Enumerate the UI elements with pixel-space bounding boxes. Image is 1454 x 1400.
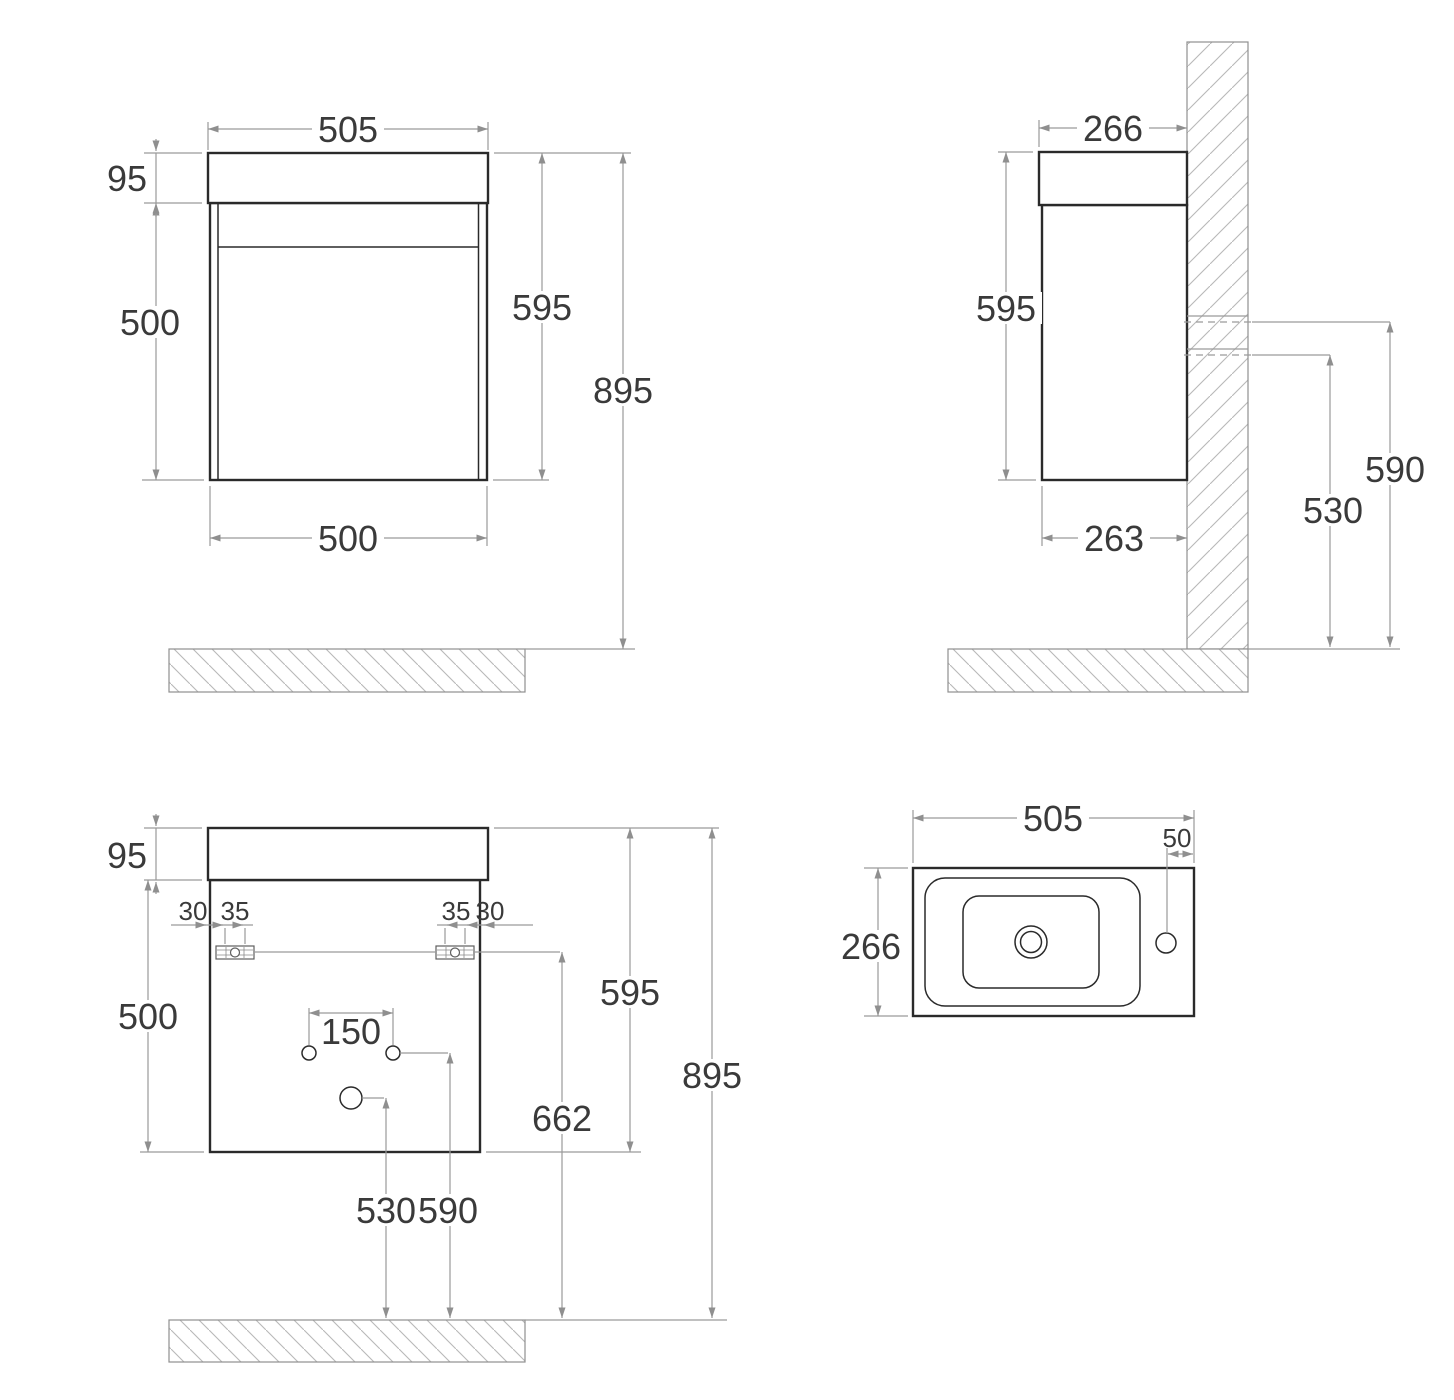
dim-label-back-edge-offset-right: 30	[476, 896, 505, 926]
back-washbasin	[208, 828, 488, 880]
dim-side-depth-top: 266	[1039, 108, 1187, 149]
dim-label-back-total-height: 895	[682, 1055, 742, 1096]
dim-label-back-outlet-height: 530	[356, 1190, 416, 1231]
dim-front-width-bottom: 500	[210, 486, 487, 559]
dim-label-back-edge-offset-left: 30	[179, 896, 208, 926]
dim-label-back-unit-height: 595	[600, 972, 660, 1013]
dim-label-back-cabinet-height: 500	[118, 996, 178, 1037]
dim-back-unit-height: 595	[486, 828, 719, 1152]
front-view	[208, 153, 488, 480]
dim-label-side-depth-bottom: 263	[1084, 518, 1144, 559]
dim-back-total-height: 895	[525, 828, 748, 1320]
front-washbasin	[208, 153, 488, 203]
floor-hatch-back-view	[169, 1320, 525, 1362]
dim-label-top-tap-offset: 50	[1163, 823, 1192, 853]
technical-drawing-page: 505 95 500 500	[0, 0, 1454, 1400]
vanity-dimension-drawing: 505 95 500 500	[0, 0, 1454, 1400]
dim-label-back-bracket-height: 662	[532, 1098, 592, 1139]
dim-top-width: 505	[913, 798, 1194, 863]
dim-side-unit-height: 595	[970, 152, 1042, 480]
dim-label-side-unit-height: 595	[976, 288, 1036, 329]
dim-label-back-bracket-offset-right: 35	[442, 896, 471, 926]
dim-label-back-supply-height: 590	[418, 1190, 478, 1231]
dim-label-back-hole-spacing: 150	[321, 1011, 381, 1052]
dim-label-side-depth-top: 266	[1083, 108, 1143, 149]
dim-front-unit-height: 595	[493, 153, 631, 480]
top-washbasin-outline	[913, 868, 1194, 1016]
dim-front-width-top: 505	[208, 109, 488, 150]
dim-back-bracket-height: 662	[526, 952, 598, 1318]
dim-label-top-depth: 266	[841, 926, 901, 967]
front-cabinet-body	[210, 203, 487, 480]
dim-top-depth: 266	[835, 868, 908, 1016]
dim-label-front-cabinet-height: 500	[120, 302, 180, 343]
dim-label-front-basin-height: 95	[107, 158, 147, 199]
dim-back-hole-spacing: 150	[309, 1008, 393, 1052]
dim-label-back-bracket-offset-left: 35	[221, 896, 250, 926]
mounting-bracket-right	[436, 946, 474, 959]
top-view	[913, 868, 1194, 1016]
floor-hatch-side-view	[948, 649, 1248, 692]
dim-front-total-height: 895	[525, 153, 659, 649]
dim-front-basin-height: 95	[107, 139, 202, 217]
dim-label-side-supply-height: 590	[1365, 449, 1425, 490]
side-cabinet-body	[1042, 205, 1187, 480]
dim-label-front-width-bottom: 500	[318, 518, 378, 559]
dim-label-side-outlet-height: 530	[1303, 490, 1363, 531]
dim-front-cabinet-height: 500	[114, 203, 204, 480]
dim-label-front-total-height: 895	[593, 370, 653, 411]
dim-side-depth-bottom: 263	[1042, 486, 1187, 559]
floor-hatch-front-view	[169, 649, 525, 692]
side-washbasin	[1039, 152, 1187, 205]
dim-label-front-unit-height: 595	[512, 287, 572, 328]
dim-label-back-basin-height: 95	[107, 835, 147, 876]
dim-label-top-width: 505	[1023, 798, 1083, 839]
mounting-bracket-left	[216, 946, 254, 959]
back-view	[208, 828, 488, 1152]
dim-label-front-width-top: 505	[318, 109, 378, 150]
dim-back-basin-height: 95	[107, 814, 202, 894]
wall-hatch-side-view	[1187, 42, 1248, 649]
